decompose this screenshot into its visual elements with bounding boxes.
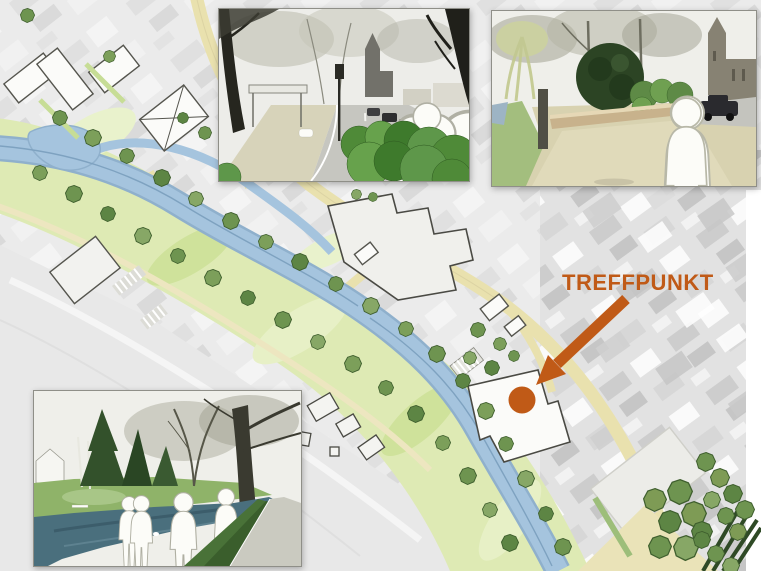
inset-street-rendering	[218, 8, 470, 182]
slide: TREFFPUNKT	[0, 0, 761, 571]
street-scene	[219, 9, 469, 181]
marker-dot-icon	[509, 387, 536, 414]
inset-river-rendering	[33, 390, 302, 567]
stele	[538, 89, 548, 149]
treffpunkt-label: TREFFPUNKT	[562, 270, 714, 296]
river-park-scene	[34, 391, 301, 566]
lawn-highlight	[62, 489, 126, 505]
inset-plaza-rendering	[491, 10, 757, 187]
plaza-scene	[492, 11, 756, 186]
